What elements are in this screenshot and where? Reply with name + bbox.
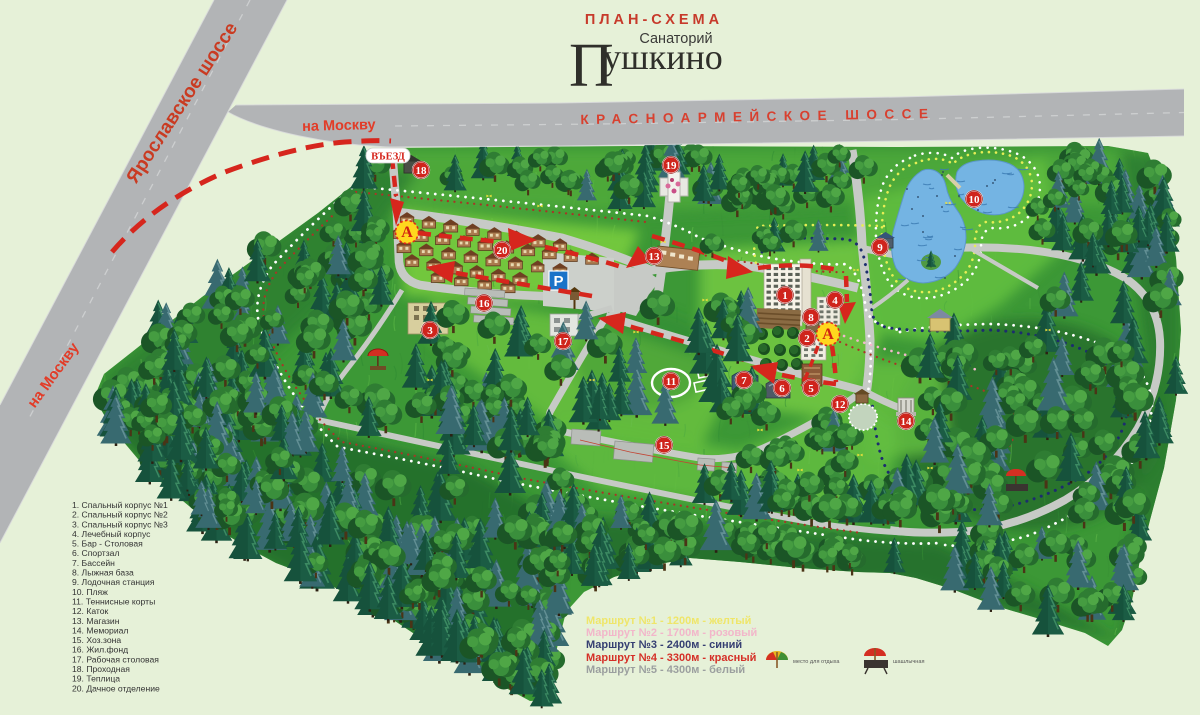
svg-text:Маршрут №5 - 4300м - белый: Маршрут №5 - 4300м - белый	[586, 664, 745, 676]
svg-text:14. Мемориал: 14. Мемориал	[72, 625, 128, 635]
svg-text:Маршрут №4 - 3300м - красный: Маршрут №4 - 3300м - красный	[586, 652, 756, 664]
svg-text:4: 4	[832, 295, 838, 307]
svg-text:ВЪЕЗД: ВЪЕЗД	[371, 152, 406, 163]
svg-text:1. Спальный корпус №1: 1. Спальный корпус №1	[72, 500, 168, 510]
svg-text:6. Спортзал: 6. Спортзал	[72, 548, 119, 558]
svg-text:3: 3	[427, 325, 433, 337]
svg-text:7: 7	[741, 375, 747, 387]
svg-text:ушкино: ушкино	[603, 37, 723, 77]
svg-text:на Москву: на Москву	[302, 117, 376, 135]
svg-text:5: 5	[808, 383, 814, 395]
svg-text:Маршрут №1 - 1200м - желтый: Маршрут №1 - 1200м - желтый	[586, 615, 751, 627]
svg-text:Маршрут №2 - 1700м - розовый: Маршрут №2 - 1700м - розовый	[586, 627, 757, 639]
svg-text:9: 9	[877, 242, 883, 254]
svg-text:16. Жил.фонд: 16. Жил.фонд	[72, 645, 128, 655]
svg-text:12. Каток: 12. Каток	[72, 606, 109, 616]
svg-text:16: 16	[479, 298, 491, 310]
svg-text:18. Проходная: 18. Проходная	[72, 664, 130, 674]
svg-text:14: 14	[901, 416, 913, 428]
svg-text:17. Рабочая столовая: 17. Рабочая столовая	[72, 654, 159, 664]
svg-text:шашлычная: шашлычная	[893, 659, 925, 665]
svg-text:15: 15	[659, 440, 671, 452]
svg-text:10: 10	[969, 194, 981, 206]
svg-text:20: 20	[497, 245, 509, 257]
svg-text:A: A	[822, 326, 834, 343]
svg-text:10. Пляж: 10. Пляж	[72, 587, 108, 597]
svg-text:Маршрут №3 - 2400м - синий: Маршрут №3 - 2400м - синий	[586, 639, 742, 651]
svg-text:6: 6	[779, 383, 785, 395]
svg-text:7. Бассейн: 7. Бассейн	[72, 558, 115, 568]
svg-text:5. Бар - Столовая: 5. Бар - Столовая	[72, 539, 143, 549]
svg-text:17: 17	[558, 336, 570, 348]
svg-text:P: P	[553, 273, 563, 290]
svg-text:8: 8	[808, 312, 814, 324]
svg-text:18: 18	[416, 165, 428, 177]
svg-text:13: 13	[649, 251, 661, 263]
svg-text:2: 2	[804, 333, 810, 345]
svg-text:12: 12	[835, 399, 847, 411]
svg-text:3. Спальный корпус №3: 3. Спальный корпус №3	[72, 519, 168, 529]
svg-text:20. Дачное отделение: 20. Дачное отделение	[72, 683, 160, 693]
svg-text:A: A	[401, 224, 413, 241]
svg-text:1: 1	[782, 290, 788, 302]
svg-text:15. Хоз.зона: 15. Хоз.зона	[72, 635, 121, 645]
svg-text:8. Лыжная база: 8. Лыжная база	[72, 568, 134, 578]
svg-text:2. Спальный корпус №2: 2. Спальный корпус №2	[72, 510, 168, 520]
svg-text:4. Лечебный корпус: 4. Лечебный корпус	[72, 529, 151, 539]
svg-text:19: 19	[666, 160, 678, 172]
svg-text:9. Лодочная станция: 9. Лодочная станция	[72, 577, 155, 587]
svg-text:19. Теплица: 19. Теплица	[72, 674, 120, 684]
svg-text:место для отдыха: место для отдыха	[793, 659, 840, 665]
svg-text:11. Теннисные корты: 11. Теннисные корты	[72, 597, 155, 607]
svg-text:11: 11	[666, 376, 676, 388]
svg-text:13. Магазин: 13. Магазин	[72, 616, 120, 626]
svg-text:ПЛАН-СХЕМА: ПЛАН-СХЕМА	[585, 12, 723, 28]
